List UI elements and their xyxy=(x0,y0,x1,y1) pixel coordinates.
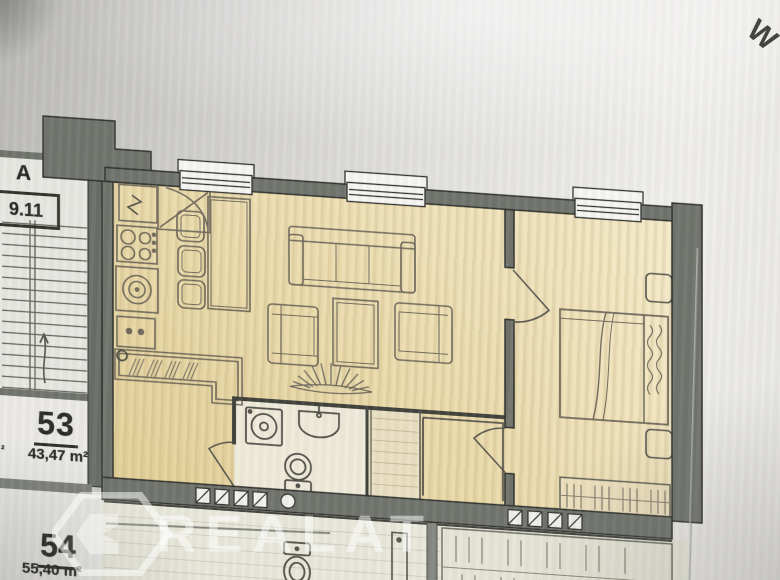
corner-handwriting-mark: W xyxy=(740,14,780,57)
stairwell-number-box: 9.11 xyxy=(0,189,60,230)
watermark-brand-text: REALAT xyxy=(156,508,433,560)
watermark-hexagon-logo-icon xyxy=(52,492,172,576)
apartment-53-number: 53 xyxy=(18,403,94,449)
watermark: REALAT xyxy=(52,492,433,576)
cut-off-area-fragment: ² xyxy=(1,444,5,456)
stairwell-section-label: A xyxy=(16,161,31,186)
window-symbol xyxy=(575,198,641,222)
stairwell-number: 9.11 xyxy=(9,198,43,221)
left-wall xyxy=(102,181,113,482)
floorplan-photo: A 9.11 53 43,47 m² ² 54 55,40 m² W REALA… xyxy=(0,0,780,580)
